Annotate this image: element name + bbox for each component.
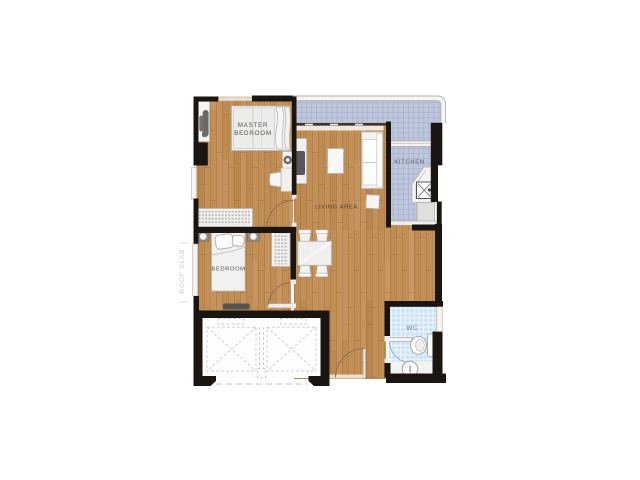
- svg-text:MASTER: MASTER: [238, 122, 269, 129]
- svg-text:LIVING AREA: LIVING AREA: [315, 205, 358, 211]
- svg-text:WC: WC: [406, 325, 418, 332]
- svg-text:KITCHEN: KITCHEN: [394, 160, 424, 166]
- svg-text:BEDROOM: BEDROOM: [211, 267, 245, 273]
- svg-text:BEDROOM: BEDROOM: [234, 130, 272, 137]
- svg-text:ROOF SLAB: ROOF SLAB: [179, 249, 186, 294]
